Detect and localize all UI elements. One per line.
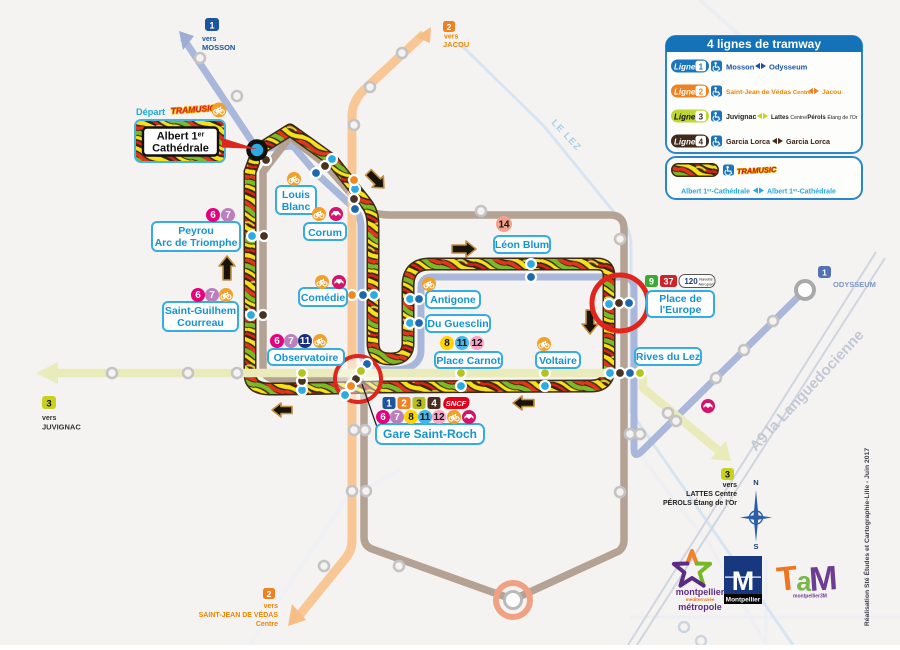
svg-text:Ligne: Ligne bbox=[674, 88, 696, 97]
svg-text:Lattes Centre/Pérols Étang de: Lattes Centre/Pérols Étang de l'Or bbox=[771, 114, 858, 121]
svg-text:Ligne: Ligne bbox=[674, 138, 696, 147]
svg-text:Louis: Louis bbox=[282, 189, 310, 201]
svg-text:N: N bbox=[753, 478, 758, 487]
svg-text:Albert 1er-Cathédrale: Albert 1er-Cathédrale bbox=[681, 187, 750, 196]
svg-text:JUVIGNAC: JUVIGNAC bbox=[42, 423, 81, 432]
svg-text:Saint-Guilhem: Saint-Guilhem bbox=[165, 305, 236, 317]
svg-text:3: 3 bbox=[416, 399, 422, 410]
svg-text:120: 120 bbox=[684, 277, 698, 286]
svg-text:Gare Saint-Roch: Gare Saint-Roch bbox=[383, 427, 477, 441]
svg-text:l'Europe: l'Europe bbox=[660, 304, 702, 316]
svg-text:7: 7 bbox=[225, 210, 231, 221]
svg-text:37: 37 bbox=[663, 277, 673, 287]
svg-text:4: 4 bbox=[431, 399, 437, 410]
svg-text:Montpellier: Montpellier bbox=[726, 597, 761, 604]
svg-text:vers: vers bbox=[42, 415, 57, 422]
svg-text:2: 2 bbox=[447, 22, 452, 32]
svg-text:Jacou: Jacou bbox=[822, 89, 841, 96]
svg-text:3: 3 bbox=[699, 112, 704, 121]
svg-text:SNCF: SNCF bbox=[446, 399, 467, 408]
svg-text:3: 3 bbox=[725, 470, 730, 480]
svg-text:Aéroport: Aéroport bbox=[698, 282, 714, 287]
svg-text:7: 7 bbox=[288, 336, 294, 347]
svg-text:11: 11 bbox=[457, 338, 468, 349]
svg-text:Place Carnot: Place Carnot bbox=[436, 355, 501, 367]
svg-text:11: 11 bbox=[300, 336, 311, 347]
svg-text:1: 1 bbox=[822, 268, 827, 278]
svg-text:Garcia Lorca: Garcia Lorca bbox=[726, 137, 771, 146]
svg-text:Blanc: Blanc bbox=[282, 201, 311, 213]
svg-text:6: 6 bbox=[195, 290, 201, 301]
svg-text:MOSSON: MOSSON bbox=[202, 43, 235, 52]
svg-text:2: 2 bbox=[267, 589, 272, 599]
svg-text:7: 7 bbox=[394, 412, 400, 423]
svg-text:Cathédrale: Cathédrale bbox=[152, 143, 209, 155]
svg-text:Ligne: Ligne bbox=[674, 63, 696, 72]
svg-text:11: 11 bbox=[420, 412, 431, 423]
svg-text:SAINT-JEAN DE VÉDAS: SAINT-JEAN DE VÉDAS bbox=[199, 610, 279, 619]
svg-text:métropole: métropole bbox=[678, 602, 722, 612]
svg-text:vers: vers bbox=[202, 36, 217, 43]
svg-text:Peyrou: Peyrou bbox=[178, 225, 214, 237]
svg-text:2: 2 bbox=[699, 87, 704, 96]
svg-text:ODYSSEUM: ODYSSEUM bbox=[833, 280, 876, 289]
svg-text:4 lignes de tramway: 4 lignes de tramway bbox=[707, 37, 821, 51]
svg-text:1: 1 bbox=[699, 62, 704, 71]
svg-text:Rives du Lez: Rives du Lez bbox=[636, 351, 700, 363]
svg-text:Mosson: Mosson bbox=[726, 62, 755, 71]
svg-text:JACOU: JACOU bbox=[443, 40, 469, 49]
svg-text:Saint-Jean de Védas Centre: Saint-Jean de Védas Centre bbox=[726, 89, 812, 96]
svg-text:Léon Blum: Léon Blum bbox=[495, 239, 549, 251]
svg-text:Courreau: Courreau bbox=[177, 317, 224, 329]
svg-text:12: 12 bbox=[433, 412, 445, 423]
svg-text:Du Guesclin: Du Guesclin bbox=[427, 318, 488, 330]
svg-text:Centre: Centre bbox=[256, 621, 278, 628]
svg-text:Départ: Départ bbox=[136, 107, 165, 117]
svg-text:6: 6 bbox=[210, 210, 216, 221]
svg-text:Albert 1er-Cathédrale: Albert 1er-Cathédrale bbox=[767, 187, 836, 196]
svg-text:PÉROLS Étang de l'Or: PÉROLS Étang de l'Or bbox=[663, 498, 737, 507]
svg-text:Antigone: Antigone bbox=[430, 294, 476, 306]
svg-text:Arc de Triomphe: Arc de Triomphe bbox=[155, 237, 238, 249]
svg-text:Ligne: Ligne bbox=[674, 113, 696, 122]
svg-text:M: M bbox=[732, 566, 755, 596]
svg-text:Observatoire: Observatoire bbox=[274, 352, 339, 364]
svg-text:Voltaire: Voltaire bbox=[539, 355, 577, 367]
svg-text:1: 1 bbox=[386, 399, 392, 410]
svg-text:14: 14 bbox=[498, 220, 510, 231]
svg-text:Garcia Lorca: Garcia Lorca bbox=[786, 137, 831, 146]
svg-text:Albert 1er: Albert 1er bbox=[157, 131, 205, 143]
svg-text:3: 3 bbox=[46, 399, 51, 410]
svg-text:1: 1 bbox=[209, 21, 215, 32]
svg-text:9: 9 bbox=[649, 277, 654, 287]
svg-text:LATTES Centre: LATTES Centre bbox=[686, 491, 737, 498]
svg-text:12: 12 bbox=[471, 338, 483, 349]
svg-text:Corum: Corum bbox=[308, 227, 342, 239]
svg-text:8: 8 bbox=[444, 338, 450, 349]
svg-text:2: 2 bbox=[401, 399, 407, 410]
svg-text:8: 8 bbox=[408, 412, 414, 423]
svg-text:vers: vers bbox=[723, 482, 738, 489]
svg-text:6: 6 bbox=[274, 336, 280, 347]
svg-text:4: 4 bbox=[699, 137, 704, 146]
svg-text:Comédie: Comédie bbox=[301, 292, 346, 304]
svg-text:Odysseum: Odysseum bbox=[769, 62, 808, 71]
svg-text:Réalisation Sté Études et Cart: Réalisation Sté Études et Cartographie-L… bbox=[862, 448, 871, 626]
svg-text:montpellier3M: montpellier3M bbox=[793, 594, 827, 600]
svg-text:S: S bbox=[753, 542, 758, 551]
svg-text:montpellier: montpellier bbox=[676, 587, 725, 597]
svg-text:vers: vers bbox=[264, 603, 279, 610]
svg-text:7: 7 bbox=[209, 290, 215, 301]
svg-text:6: 6 bbox=[380, 412, 386, 423]
svg-text:Juvignac: Juvignac bbox=[726, 114, 756, 121]
